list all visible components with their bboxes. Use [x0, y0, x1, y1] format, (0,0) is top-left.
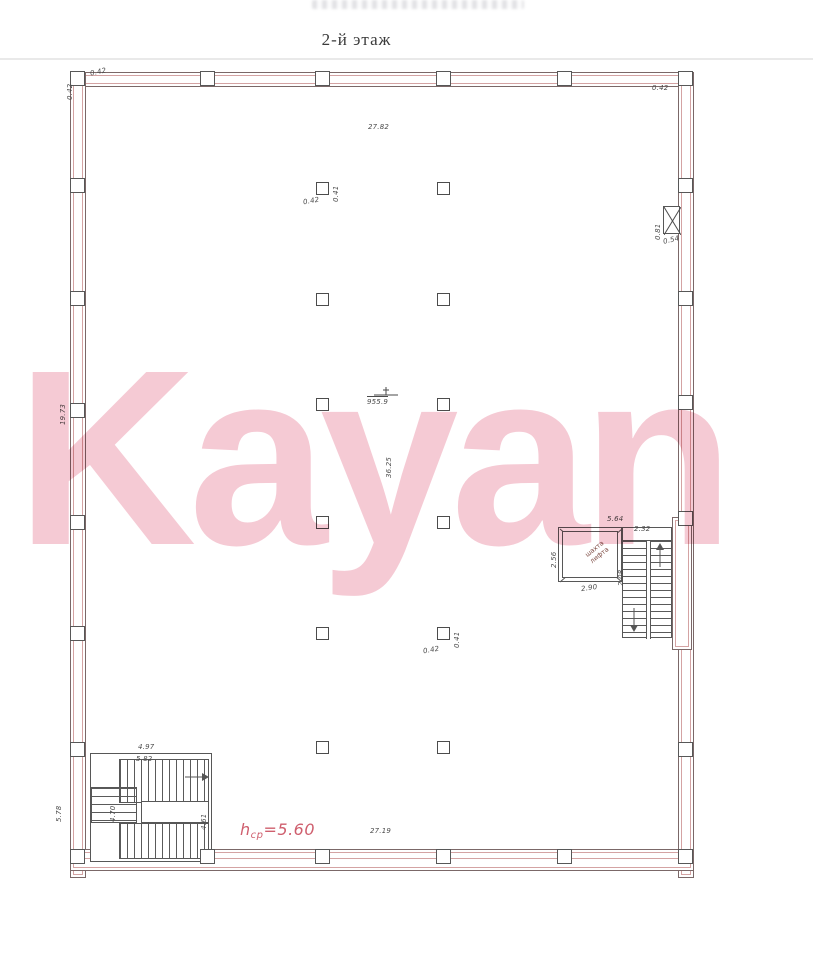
wall-right [678, 72, 694, 878]
wall-column [678, 178, 693, 193]
wall-top [70, 72, 694, 87]
dim-corner-right: 0.42 [652, 84, 668, 92]
dim-area: 955.9 [367, 396, 388, 406]
wall-column [678, 849, 693, 864]
stair-left-landing [141, 801, 209, 823]
column [437, 293, 450, 306]
stair-left-bottom-flight [119, 823, 209, 859]
dim-left-wall-height: 19.73 [59, 404, 67, 425]
wall-column [557, 71, 572, 86]
ceiling-height-note: hср=5.60 [240, 820, 315, 841]
wall-column [315, 849, 330, 864]
dim-stair-right-width: 2.32 [634, 525, 650, 533]
wall-column [315, 71, 330, 86]
column [316, 741, 329, 754]
dim-stair-right-flight: 2.08 [617, 570, 625, 586]
wall-left [70, 72, 86, 878]
column [437, 182, 450, 195]
page-title: 2-й этаж [0, 30, 713, 50]
wall-column [200, 849, 215, 864]
column [316, 398, 329, 411]
dim-duct-h: 0.81 [654, 224, 662, 240]
dim-corner-left-b: 0.42 [66, 84, 74, 100]
wall-column [200, 71, 215, 86]
column [316, 182, 329, 195]
column [437, 398, 450, 411]
stair-right-enclosure [672, 517, 692, 650]
floor-plan-page: 2-й этаж шахта лифта [0, 0, 813, 962]
wall-column [70, 178, 85, 193]
letterhead-smudge [312, 0, 524, 9]
dim-lift-width-bottom: 2.90 [581, 583, 598, 593]
scan-artifact-line [0, 58, 813, 60]
dim-col-bot-w: 0.41 [453, 632, 461, 648]
column [437, 516, 450, 529]
wall-column [70, 849, 85, 864]
wall-column [70, 742, 85, 757]
wall-column [678, 395, 693, 410]
wall-column [70, 403, 85, 418]
dim-stair-left-wall: 5.78 [55, 806, 63, 822]
wall-column [557, 849, 572, 864]
column [437, 741, 450, 754]
dim-top-width: 27.82 [368, 123, 389, 131]
wall-column [70, 291, 85, 306]
column [437, 627, 450, 640]
dim-hall-depth: 36.25 [385, 457, 393, 478]
elevator-shaft: шахта лифта [558, 527, 622, 582]
dim-stair-left-width2: 5.82 [136, 755, 152, 763]
dim-lift-width-top: 5.64 [607, 515, 623, 523]
wall-column [678, 511, 693, 526]
dim-stair-left-width: 4.97 [138, 743, 154, 751]
wall-column [70, 626, 85, 641]
wall-column [678, 291, 693, 306]
column [316, 627, 329, 640]
column [316, 293, 329, 306]
wall-column [678, 742, 693, 757]
duct-box [663, 206, 680, 234]
dim-stair-left-flight-l: 4.70 [109, 806, 117, 822]
wall-column [436, 849, 451, 864]
dim-lift-height-left: 2.56 [550, 552, 558, 568]
dim-col-top-t: 0.42 [302, 196, 320, 207]
stair-up-arrow-icon [655, 543, 665, 567]
stair-left-arrow-icon [185, 772, 209, 782]
stair-down-arrow-icon [629, 608, 639, 632]
column [316, 516, 329, 529]
dim-stair-left-flight-r: 4.61 [200, 814, 208, 830]
wall-column [436, 71, 451, 86]
wall-column [678, 71, 693, 86]
dim-col-bot-t: 0.42 [422, 645, 440, 656]
duct-cross-icon [664, 207, 681, 235]
wall-column [70, 515, 85, 530]
dim-col-top-w: 0.41 [332, 186, 340, 202]
dim-bottom-width: 27.19 [370, 827, 391, 835]
